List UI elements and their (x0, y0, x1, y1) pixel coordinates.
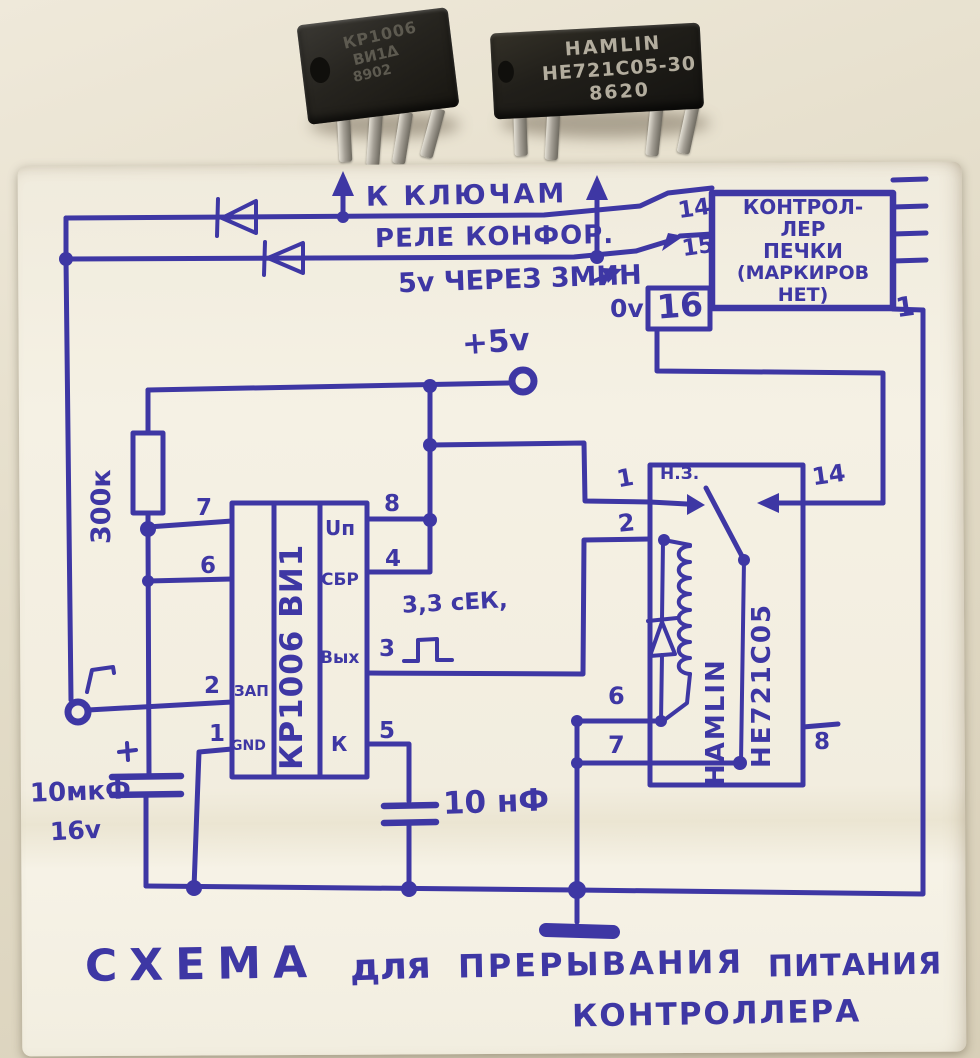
timer-pin-8: 8 (384, 492, 400, 516)
label-relay-burners: РЕЛЕ КОНФОР. (375, 222, 615, 253)
label-cap-10uf: 10мкФ (30, 777, 132, 808)
title-word-3: ПРЕРЫВАНИЯ (458, 946, 745, 985)
timer-pin-1: 1 (209, 722, 225, 746)
label-to-keys: К КЛЮЧАМ (366, 180, 568, 212)
timer-pin-5: 5 (379, 719, 395, 743)
chip-notch (497, 60, 514, 83)
timer-pin-3: 3 (379, 637, 395, 661)
label-plus-5v: +5v (461, 324, 531, 361)
chip-notch (309, 56, 332, 84)
chip-marking: 8620 (588, 79, 650, 105)
relay-label-nc: Н.З. (660, 466, 699, 484)
relay-pin-14: 14 (810, 461, 847, 491)
title-word-1: СХЕМА (85, 940, 320, 990)
relay-brand: HAMLIN (703, 558, 730, 786)
controller-pin-1: 1 (894, 293, 917, 324)
timer-pin-4: 4 (385, 547, 401, 571)
label-cap-10nf: 10 нФ (442, 784, 549, 820)
relay-pin-2: 2 (617, 510, 636, 537)
title-line-2: КОНТРОЛЛЕРА (572, 995, 862, 1033)
controller-title: КОНТРОЛ- ЛЕР ПЕЧКИ (МАРКИРОВ НЕТ) (714, 196, 892, 306)
controller-title-line: (МАРКИРОВ (714, 262, 892, 284)
timer-label-gnd: GND (231, 739, 266, 754)
relay-model: HE721C05 (749, 492, 776, 768)
chip-pin (545, 110, 561, 161)
title-word-4: ПИТАНИЯ (768, 948, 943, 983)
controller-title-line: ЛЕР (714, 218, 892, 240)
timer-pin-6: 6 (200, 554, 216, 578)
controller-title-line: КОНТРОЛ- (714, 196, 892, 218)
timer-pin-7: 7 (196, 496, 212, 520)
timer-label-zap: ЗАП (234, 684, 269, 700)
label-0v: 0v (610, 296, 644, 322)
timer-label-k: К (331, 734, 347, 755)
timer-pin-2: 2 (204, 674, 220, 698)
controller-pin-14: 14 (676, 195, 711, 223)
controller-title-line: ПЕЧКИ (714, 240, 892, 262)
label-pulse-duration: 3,3 сЕК, (401, 588, 508, 618)
chip-photo-hamlin: HAMLIN HE721C05-30 8620 (490, 23, 704, 120)
relay-pin-6: 6 (608, 684, 625, 709)
controller-title-line: НЕТ) (714, 284, 892, 306)
timer-label-sbr: СБР (321, 572, 359, 590)
chip-pin (366, 112, 383, 167)
controller-pin-15: 15 (680, 233, 715, 261)
label-resistor-300k: 300к (88, 426, 116, 544)
title-word-2: для (349, 947, 431, 989)
timer-label-out: Вых (320, 650, 359, 668)
label-cap-16v: 16v (49, 817, 101, 846)
controller-pin-16: 16 (656, 287, 704, 325)
timer-name: КР1006 ВИ1 (276, 514, 309, 770)
relay-pin-7: 7 (608, 733, 625, 758)
relay-pin-8: 8 (814, 730, 830, 754)
chip-photo-kr1006: КР1006 ВИ1Δ 8902 (296, 7, 459, 125)
timer-label-up: Uп (325, 518, 355, 539)
photo-scene: КР1006 ВИ1Δ 8902 HAMLIN HE721C05-30 8620 (0, 0, 980, 1058)
